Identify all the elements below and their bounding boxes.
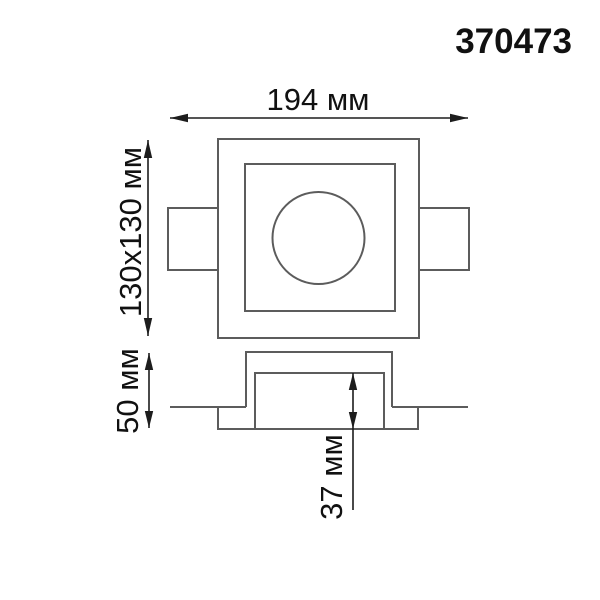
top-view-outer-frame	[218, 139, 419, 338]
height-arrow-top-icon	[145, 353, 153, 370]
depth-arrow-bottom-icon	[349, 412, 357, 429]
lamp-opening-circle	[273, 192, 365, 284]
height-arrow-bottom-icon	[145, 411, 153, 428]
width-arrow-right-icon	[450, 114, 468, 122]
mounting-tab-right	[419, 208, 469, 270]
side-view-flange	[218, 407, 418, 429]
face-arrow-bottom-icon	[144, 318, 152, 336]
face-dimension-label: 130x130 мм	[113, 147, 148, 317]
width-arrow-left-icon	[170, 114, 188, 122]
depth-arrow-top-icon	[349, 373, 357, 390]
mounting-tab-left	[168, 208, 218, 270]
side-view-housing	[246, 352, 392, 407]
technical-drawing: 370473	[0, 0, 600, 600]
height-dimension-label: 50 мм	[110, 348, 145, 434]
top-view-inner-frame	[245, 164, 395, 311]
top-view	[168, 139, 469, 338]
width-dimension-label: 194 мм	[267, 82, 370, 117]
side-view	[170, 352, 468, 429]
product-code: 370473	[455, 22, 572, 61]
depth-dimension-label: 37 мм	[314, 434, 349, 520]
side-view-recess	[255, 373, 384, 429]
drawing-canvas: 370473	[0, 0, 600, 600]
